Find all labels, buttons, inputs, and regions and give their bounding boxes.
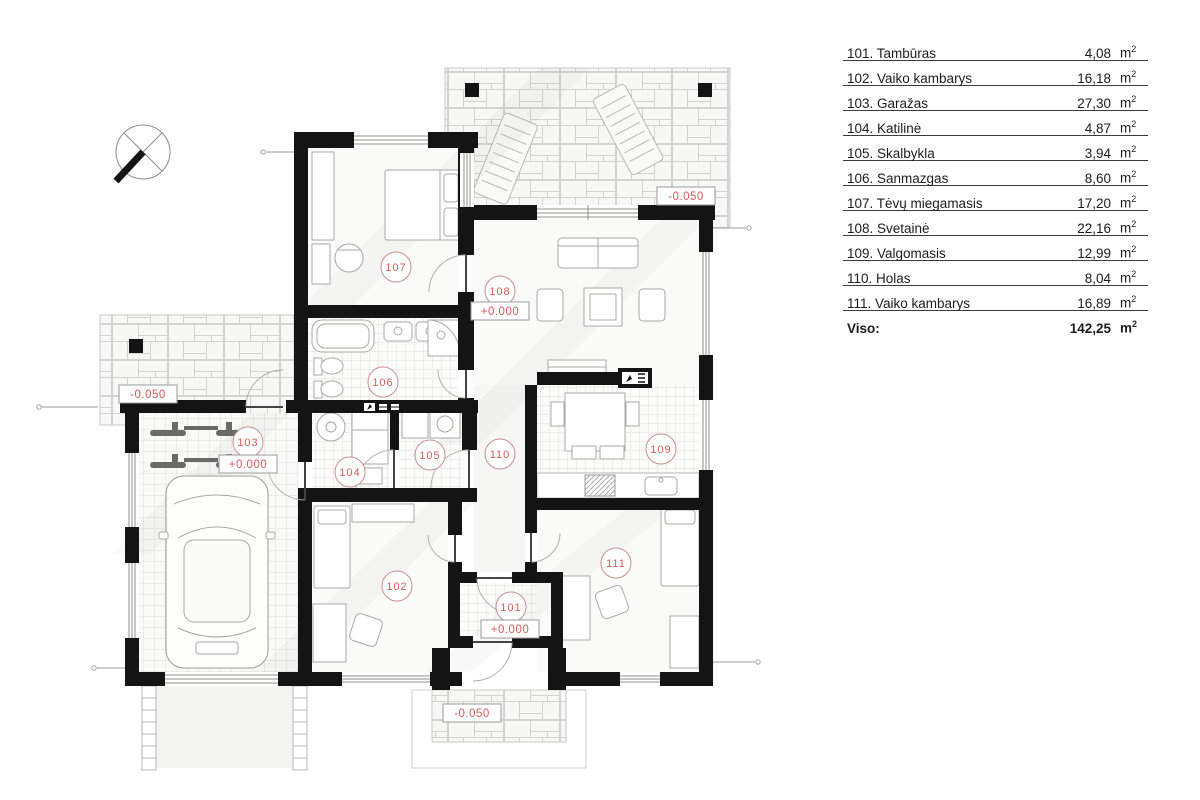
window: [460, 153, 474, 207]
column: [465, 83, 479, 97]
room-marker-110: 110: [485, 439, 515, 469]
fireplace-icon: [618, 368, 652, 388]
room-marker-109: 109: [646, 434, 676, 464]
garage-door: [165, 672, 278, 686]
room-area-value: 3,94: [1049, 146, 1111, 162]
room-area-unit: m2: [1120, 41, 1146, 62]
kitchen-counter-icon: [537, 473, 699, 498]
room-marker-102: 102: [382, 571, 412, 601]
svg-text:105: 105: [419, 450, 440, 462]
shelf-icon: [352, 504, 414, 522]
armchair-icon: [537, 289, 563, 321]
svg-text:102: 102: [386, 581, 407, 593]
room-name: 101. Tambūras: [847, 46, 1049, 62]
wardrobe-icon: [670, 616, 699, 668]
desk-icon: [313, 604, 346, 662]
coffee-table-icon: [584, 288, 622, 326]
room-name: 111. Vaiko kambarys: [847, 296, 1049, 312]
svg-text:+0.000: +0.000: [481, 306, 520, 318]
room-name: 105. Skalbykla: [847, 146, 1049, 162]
window: [125, 563, 139, 638]
svg-text:-0.050: -0.050: [130, 389, 166, 401]
elevation-marker: +0.000: [471, 302, 529, 320]
legend-row: 110. Holas8,04m2: [843, 261, 1148, 286]
room-area-unit: m2: [1120, 266, 1146, 287]
room-area-unit: m2: [1120, 316, 1146, 337]
legend-row: 109. Valgomasis12,99m2: [843, 236, 1148, 261]
svg-text:111: 111: [606, 558, 626, 570]
armchair-icon: [639, 289, 665, 321]
elevation-marker: -0.050: [657, 187, 715, 205]
room-name: 107. Tėvų miegamasis: [847, 196, 1049, 212]
room-name: 108. Svetainė: [847, 221, 1049, 237]
room-marker-107: 107: [381, 252, 411, 282]
legend-row: 101. Tambūras4,08m2: [843, 36, 1148, 61]
svg-text:+0.000: +0.000: [491, 624, 530, 636]
shower-icon: [428, 320, 460, 356]
toilet-icon: [314, 358, 343, 375]
car-icon: [159, 476, 275, 668]
bathtub-icon: [312, 320, 374, 352]
legend-total-row: Viso:142,25m2: [843, 311, 1148, 335]
sofa-icon: [558, 238, 638, 268]
sliding-door: [537, 205, 638, 220]
room-area-value: 27,30: [1049, 96, 1111, 112]
legend-row: 102. Vaiko kambarys16,18m2: [843, 61, 1148, 86]
svg-text:103: 103: [237, 437, 258, 449]
svg-text:-0.050: -0.050: [668, 191, 704, 203]
elevation-marker: -0.050: [443, 704, 501, 722]
svg-text:108: 108: [489, 286, 510, 298]
dresser-icon: [312, 244, 330, 284]
room-area-value: 4,87: [1049, 121, 1111, 137]
floor-plan-sheet: { "legend": { "rows": [ {"label": "101. …: [0, 0, 1200, 800]
armchair-icon: [335, 244, 363, 272]
room-area-value: 16,18: [1049, 71, 1111, 87]
room-marker-105: 105: [415, 440, 445, 470]
room-area-value: 142,25: [1049, 321, 1111, 337]
svg-text:110: 110: [490, 449, 511, 461]
room-name: 109. Valgomasis: [847, 246, 1049, 262]
room-area-unit: m2: [1120, 291, 1146, 312]
elevation-marker: +0.000: [219, 455, 277, 473]
room-name: 104. Katilinė: [847, 121, 1049, 137]
legend-row: 106. Sanmazgas8,60m2: [843, 161, 1148, 186]
room-area-unit: m2: [1120, 141, 1146, 162]
room-legend: 101. Tambūras4,08m2102. Vaiko kambarys16…: [843, 36, 1148, 335]
svg-text:109: 109: [650, 444, 671, 456]
bed-icon: [314, 506, 350, 588]
room-marker-106: 106: [368, 367, 398, 397]
bidet-icon: [314, 381, 343, 398]
room-area-unit: m2: [1120, 66, 1146, 87]
room-area-unit: m2: [1120, 166, 1146, 187]
room-area-value: 16,89: [1049, 296, 1111, 312]
room-area-value: 17,20: [1049, 196, 1111, 212]
room-name: 110. Holas: [847, 271, 1049, 287]
room-area-unit: m2: [1120, 91, 1146, 112]
window: [354, 132, 428, 148]
room-area-unit: m2: [1120, 116, 1146, 137]
legend-row: 105. Skalbykla3,94m2: [843, 136, 1148, 161]
bed-icon: [661, 506, 699, 586]
window: [125, 453, 139, 527]
electric-panel-icon: [364, 403, 399, 411]
svg-text:-0.050: -0.050: [454, 708, 490, 720]
window: [699, 400, 713, 470]
room-area-value: 8,04: [1049, 271, 1111, 287]
legend-row: 103. Garažas27,30m2: [843, 86, 1148, 111]
column: [129, 339, 143, 353]
wardrobe-icon: [312, 152, 334, 240]
window: [699, 252, 713, 355]
room-area-unit: m2: [1120, 216, 1146, 237]
window: [620, 672, 660, 686]
room-area-value: 12,99: [1049, 246, 1111, 262]
svg-text:+0.000: +0.000: [229, 459, 268, 471]
room-name: 103. Garažas: [847, 96, 1049, 112]
room-marker-104: 104: [335, 457, 365, 487]
svg-text:104: 104: [339, 467, 360, 479]
svg-text:101: 101: [500, 602, 521, 614]
svg-text:106: 106: [372, 377, 393, 389]
room-name: 106. Sanmazgas: [847, 171, 1049, 187]
elevation-marker: +0.000: [481, 620, 539, 638]
elevation-marker: -0.050: [119, 385, 177, 403]
svg-text:107: 107: [385, 262, 406, 274]
north-arrow-icon: [116, 125, 170, 181]
room-marker-103: 103: [233, 427, 263, 457]
room-area-value: 4,08: [1049, 46, 1111, 62]
room-name: 102. Vaiko kambarys: [847, 71, 1049, 87]
room-marker-111: 111: [601, 548, 631, 578]
room-area-value: 8,60: [1049, 171, 1111, 187]
room-area-unit: m2: [1120, 241, 1146, 262]
room-area-value: 22,16: [1049, 221, 1111, 237]
bed-icon: [385, 170, 462, 240]
legend-row: 111. Vaiko kambarys16,89m2: [843, 286, 1148, 311]
legend-row: 107. Tėvų miegamasis17,20m2: [843, 186, 1148, 211]
room-marker-101: 101: [496, 592, 526, 622]
washer-icon: [402, 410, 460, 438]
driveway: [142, 686, 307, 770]
window: [342, 672, 430, 686]
room-area-unit: m2: [1120, 191, 1146, 212]
column: [698, 83, 712, 97]
room-name: Viso:: [847, 321, 1049, 337]
legend-row: 108. Svetainė22,16m2: [843, 211, 1148, 236]
legend-row: 104. Katilinė4,87m2: [843, 111, 1148, 136]
